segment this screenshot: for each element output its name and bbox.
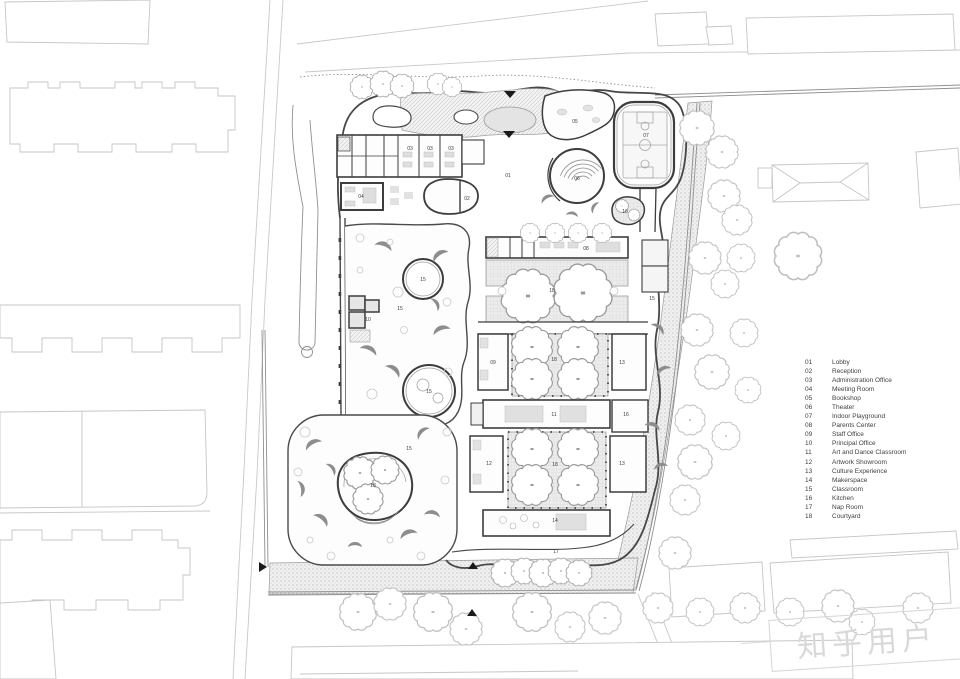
legend-number: 02 bbox=[805, 367, 832, 376]
legend-number: 11 bbox=[805, 448, 832, 457]
room-label: 18 bbox=[622, 209, 628, 215]
legend-number: 07 bbox=[805, 412, 832, 421]
legend-label: Makerspace bbox=[832, 476, 960, 485]
room-label: 03 bbox=[448, 146, 454, 152]
kitchen bbox=[612, 400, 648, 432]
legend-number: 01 bbox=[805, 358, 832, 367]
legend-item: 03Administration Office bbox=[805, 376, 960, 385]
legend-item: 05Bookshop bbox=[805, 394, 960, 403]
legend-label: Indoor Playground bbox=[832, 412, 960, 421]
legend-label: Staff Office bbox=[832, 430, 960, 439]
bookshop bbox=[542, 90, 614, 140]
context-slab-1 bbox=[10, 82, 235, 152]
basketball-court bbox=[623, 112, 667, 178]
site-plan-drawing: 01 02 03 03 03 04 05 06 07 08 09 10 11 1… bbox=[0, 0, 960, 679]
legend-label: Parents Center bbox=[832, 421, 960, 430]
legend-label: Kitchen bbox=[832, 494, 960, 503]
legend-item: 14Makerspace bbox=[805, 476, 960, 485]
room-label: 17 bbox=[553, 549, 559, 555]
room-label: 18 bbox=[549, 288, 555, 294]
legend-number: 15 bbox=[805, 485, 832, 494]
room-label: 04 bbox=[358, 194, 364, 200]
west-play-zone bbox=[345, 224, 470, 426]
legend-number: 14 bbox=[805, 476, 832, 485]
courtyard-18a bbox=[486, 260, 628, 323]
room-label: 18 bbox=[370, 483, 376, 489]
legend-label: Classroom bbox=[832, 485, 960, 494]
room-label: 05 bbox=[572, 119, 578, 125]
legend-item: 16Kitchen bbox=[805, 494, 960, 503]
legend-label: Art and Dance Classroom bbox=[832, 448, 960, 457]
room-label: 15 bbox=[426, 389, 432, 395]
context-rect-building bbox=[0, 410, 207, 508]
legend-label: Principal Office bbox=[832, 439, 960, 448]
legend-item: 12Artwork Showroom bbox=[805, 458, 960, 467]
room-label: 15 bbox=[397, 306, 403, 312]
lower-playground bbox=[288, 415, 457, 565]
context-building-topright-1 bbox=[655, 12, 709, 46]
legend-number: 08 bbox=[805, 421, 832, 430]
room-label: 15 bbox=[406, 446, 412, 452]
legend-item: 11Art and Dance Classroom bbox=[805, 448, 960, 457]
courtyard-18c bbox=[508, 429, 606, 508]
legend-item: 07Indoor Playground bbox=[805, 412, 960, 421]
legend-number: 18 bbox=[805, 512, 832, 521]
courtyard-block bbox=[470, 237, 668, 536]
room-label: 03 bbox=[407, 146, 413, 152]
room-label: 18 bbox=[552, 462, 558, 468]
office-wing bbox=[337, 135, 484, 177]
legend-item: 06Theater bbox=[805, 403, 960, 412]
legend-label: Courtyard bbox=[832, 512, 960, 521]
context-building-topleft bbox=[5, 0, 150, 44]
legend-label: Nap Room bbox=[832, 503, 960, 512]
culture-room-b bbox=[610, 436, 646, 492]
room-label: 10 bbox=[365, 317, 371, 323]
dropoff-loop bbox=[299, 207, 318, 350]
legend-label: Artwork Showroom bbox=[832, 458, 960, 467]
legend-item: 15Classroom bbox=[805, 485, 960, 494]
room-label: 08 bbox=[583, 246, 589, 252]
legend-label: Administration Office bbox=[832, 376, 960, 385]
room-label: 15 bbox=[420, 277, 426, 283]
room-label: 02 bbox=[464, 196, 470, 202]
legend-label: Lobby bbox=[832, 358, 960, 367]
legend-number: 05 bbox=[805, 394, 832, 403]
legend-item: 04Meeting Room bbox=[805, 385, 960, 394]
planter-kidney bbox=[373, 106, 411, 127]
context-hip-roof-building bbox=[758, 163, 869, 202]
legend-item: 18Courtyard bbox=[805, 512, 960, 521]
room-label: 13 bbox=[619, 360, 625, 366]
legend-label: Bookshop bbox=[832, 394, 960, 403]
context-building-farright bbox=[916, 148, 960, 208]
dropoff-turnaround bbox=[302, 347, 313, 358]
room-label: 06 bbox=[574, 176, 580, 182]
legend-number: 04 bbox=[805, 385, 832, 394]
context-building-bottomleft bbox=[0, 600, 56, 679]
culture-room-a bbox=[612, 334, 646, 390]
east-wing-rooms bbox=[642, 240, 668, 292]
legend-item: 13Culture Experience bbox=[805, 467, 960, 476]
legend-item: 02Reception bbox=[805, 367, 960, 376]
planter-ellipse bbox=[454, 110, 478, 124]
legend-number: 10 bbox=[805, 439, 832, 448]
reception bbox=[424, 179, 478, 214]
room-label: 09 bbox=[490, 360, 496, 366]
legend-item: 10Principal Office bbox=[805, 439, 960, 448]
room-label: 12 bbox=[486, 461, 492, 467]
room-label: 13 bbox=[619, 461, 625, 467]
entry-pond bbox=[484, 107, 536, 133]
courtyard-18b bbox=[512, 327, 608, 400]
room-label: 15 bbox=[649, 296, 655, 302]
legend-number: 13 bbox=[805, 467, 832, 476]
entrance-arrow-west bbox=[259, 562, 267, 572]
legend-label: Theater bbox=[832, 403, 960, 412]
makerspace-band bbox=[483, 510, 610, 536]
watermark-text: 知乎用户 bbox=[795, 613, 938, 666]
legend-item: 09Staff Office bbox=[805, 430, 960, 439]
legend-item: 17Nap Room bbox=[805, 503, 960, 512]
room-label: 18 bbox=[551, 357, 557, 363]
room-label: 14 bbox=[552, 518, 558, 524]
legend-number: 16 bbox=[805, 494, 832, 503]
indoor-playground bbox=[614, 102, 674, 188]
legend-number: 17 bbox=[805, 503, 832, 512]
legend-item: 08Parents Center bbox=[805, 421, 960, 430]
context-building-topright-2 bbox=[746, 14, 955, 54]
legend-number: 03 bbox=[805, 376, 832, 385]
room-label: 01 bbox=[505, 173, 511, 179]
legend-label: Culture Experience bbox=[832, 467, 960, 476]
legend-label: Meeting Room bbox=[832, 385, 960, 394]
legend-number: 12 bbox=[805, 458, 832, 467]
legend-number: 09 bbox=[805, 430, 832, 439]
room-label: 03 bbox=[427, 146, 433, 152]
legend-number: 06 bbox=[805, 403, 832, 412]
room-label: 11 bbox=[551, 412, 556, 418]
context-slab-3 bbox=[0, 530, 190, 610]
room-label: 16 bbox=[623, 412, 629, 418]
art-dance-band bbox=[471, 400, 610, 428]
legend: 01Lobby 02Reception 03Administration Off… bbox=[805, 358, 960, 521]
ne-courtyard-blob bbox=[612, 197, 644, 225]
legend-label: Reception bbox=[832, 367, 960, 376]
legend-item: 01Lobby bbox=[805, 358, 960, 367]
context-slab-2 bbox=[0, 305, 240, 352]
room-label: 07 bbox=[643, 133, 649, 139]
